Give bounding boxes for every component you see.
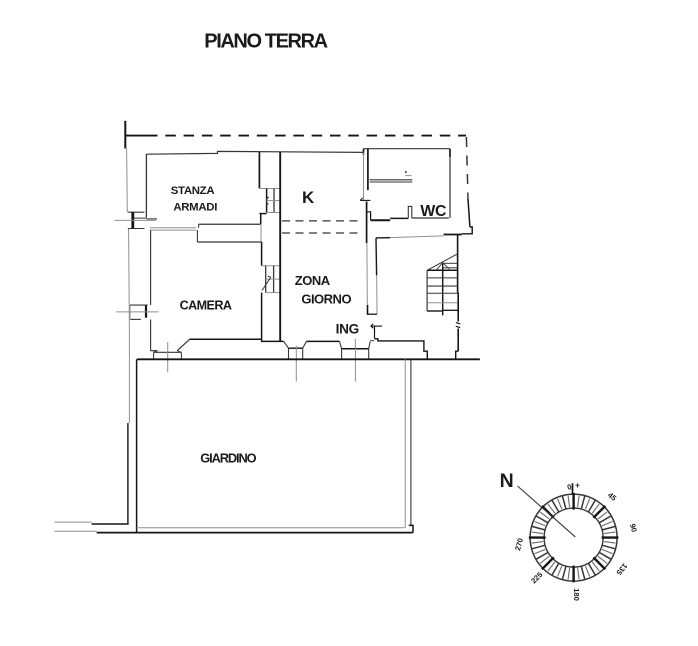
svg-text:N: N: [500, 470, 514, 492]
svg-text:K: K: [302, 188, 315, 207]
svg-text:GIARDINO: GIARDINO: [200, 451, 256, 466]
svg-text:ING: ING: [336, 321, 359, 336]
svg-text:ZONA: ZONA: [295, 273, 331, 288]
svg-text:WC: WC: [420, 203, 446, 220]
svg-text:PIANO TERRA: PIANO TERRA: [204, 31, 327, 53]
svg-text:180: 180: [572, 588, 581, 601]
svg-text:GIORNO: GIORNO: [301, 292, 351, 307]
svg-text:ARMADI: ARMADI: [173, 202, 217, 214]
svg-text:STANZA: STANZA: [171, 185, 215, 197]
svg-text:CAMERA: CAMERA: [180, 298, 232, 312]
